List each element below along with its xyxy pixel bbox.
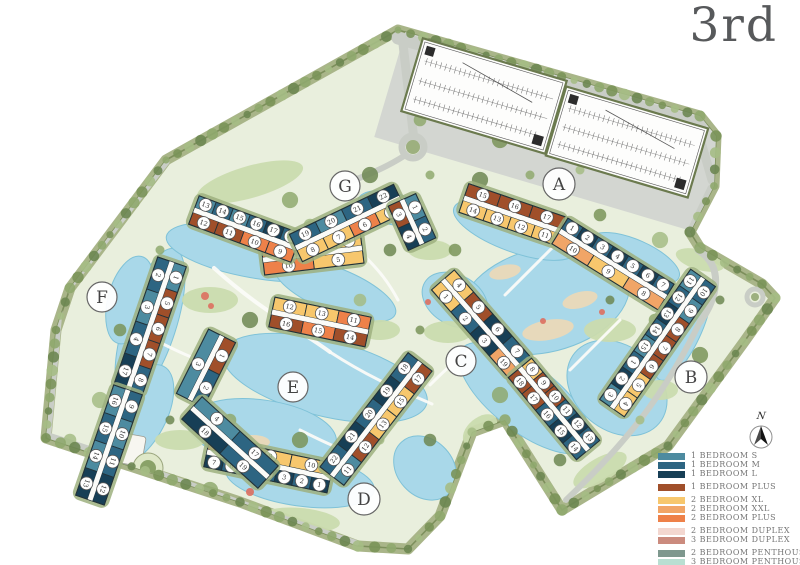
perimeter-tree-icon — [639, 455, 650, 466]
perimeter-tree-icon — [136, 186, 147, 197]
perimeter-tree-icon — [98, 241, 107, 250]
perimeter-tree-icon — [358, 44, 369, 55]
perimeter-tree-icon — [327, 531, 337, 541]
perimeter-tree-icon — [594, 82, 604, 92]
perimeter-tree-icon — [702, 197, 710, 205]
perimeter-tree-icon — [89, 251, 99, 261]
perimeter-tree-icon — [302, 522, 310, 530]
building-letter: A — [552, 175, 566, 195]
perimeter-tree-icon — [69, 442, 80, 453]
perimeter-tree-icon — [435, 511, 446, 522]
perimeter-tree-icon — [57, 312, 64, 319]
tree-icon — [156, 246, 165, 255]
perimeter-tree-icon — [254, 104, 263, 113]
perimeter-tree-icon — [106, 231, 113, 238]
tree-icon — [292, 432, 308, 448]
tree-icon — [652, 232, 668, 248]
perimeter-tree-icon — [722, 360, 731, 369]
perimeter-tree-icon — [300, 77, 311, 88]
legend-item: 1 BEDROOM L — [658, 470, 800, 478]
perimeter-tree-icon — [41, 433, 51, 443]
perimeter-tree-icon — [45, 407, 53, 415]
perimeter-tree-icon — [244, 111, 251, 118]
legend-item: 2 BEDROOM PLUS — [658, 514, 800, 522]
perimeter-tree-icon — [710, 165, 720, 175]
legend-group: 2 BEDROOM XL2 BEDROOM XXL2 BEDROOM PLUS — [658, 496, 800, 522]
tree-icon — [136, 476, 145, 485]
tree-icon — [424, 434, 437, 447]
perimeter-tree-icon — [415, 534, 422, 541]
perimeter-tree-icon — [581, 491, 590, 500]
perimeter-tree-icon — [369, 541, 380, 552]
perimeter-tree-icon — [145, 176, 155, 186]
perimeter-tree-icon — [154, 166, 163, 175]
unit-type-legend: 1 BEDROOM S1 BEDROOM M1 BEDROOM L1 BEDRO… — [658, 452, 800, 565]
perimeter-tree-icon — [340, 536, 351, 547]
tree-icon — [526, 171, 535, 180]
tree-icon — [282, 192, 298, 208]
perimeter-tree-icon — [222, 494, 230, 502]
perimeter-tree-icon — [61, 297, 70, 306]
legend-group: 1 BEDROOM PLUS — [658, 483, 800, 491]
perimeter-tree-icon — [153, 470, 164, 481]
building-letter: B — [685, 368, 698, 388]
legend-swatch — [658, 528, 685, 535]
unit-number: 12 — [285, 302, 295, 312]
building-letter: D — [357, 490, 371, 510]
legend-swatch — [658, 462, 685, 469]
perimeter-tree-icon — [770, 293, 781, 304]
compass: N — [744, 412, 778, 454]
tree-icon — [606, 296, 615, 305]
perimeter-tree-icon — [571, 77, 578, 84]
perimeter-tree-icon — [619, 89, 630, 100]
perimeter-tree-icon — [80, 261, 91, 272]
legend-label: 2 BEDROOM XXL — [691, 505, 770, 513]
perimeter-tree-icon — [209, 489, 217, 497]
perimeter-tree-icon — [140, 466, 150, 476]
perimeter-tree-icon — [173, 149, 182, 158]
perimeter-tree-icon — [762, 303, 773, 314]
perimeter-tree-icon — [740, 338, 748, 346]
unit-number: 11 — [349, 315, 359, 325]
perimeter-tree-icon — [695, 111, 706, 122]
tree-icon — [636, 416, 645, 425]
perimeter-tree-icon — [713, 371, 724, 382]
legend-label: 2 BEDROOM PLUS — [691, 514, 776, 522]
building-letter: C — [454, 352, 467, 372]
perimeter-tree-icon — [733, 266, 741, 274]
legend-item: 2 BEDROOM XXL — [658, 505, 800, 513]
perimeter-tree-icon — [659, 102, 667, 110]
perimeter-tree-icon — [274, 511, 285, 522]
perimeter-tree-icon — [128, 197, 139, 208]
perimeter-tree-icon — [65, 283, 76, 294]
legend-swatch — [658, 559, 685, 565]
perimeter-tree-icon — [445, 482, 456, 493]
legend-swatch — [658, 497, 685, 504]
perimeter-tree-icon — [47, 365, 58, 376]
perimeter-tree-icon — [207, 128, 218, 139]
perimeter-tree-icon — [467, 427, 476, 436]
perimeter-tree-icon — [705, 383, 716, 394]
perimeter-tree-icon — [288, 517, 298, 527]
perimeter-tree-icon — [184, 142, 194, 152]
perimeter-tree-icon — [195, 135, 206, 146]
legend-label: 3 BEDROOM DUPLEX — [691, 536, 790, 544]
perimeter-tree-icon — [569, 498, 580, 509]
legend-swatch — [658, 506, 685, 513]
perimeter-tree-icon — [747, 326, 757, 336]
tree-icon — [166, 416, 175, 425]
perimeter-tree-icon — [440, 496, 451, 507]
perimeter-tree-icon — [167, 474, 178, 485]
tree-icon — [692, 347, 708, 363]
legend-swatch — [658, 484, 685, 491]
legend-label: 1 BEDROOM S — [691, 452, 758, 460]
perimeter-tree-icon — [114, 220, 123, 229]
unit-number: 15 — [313, 326, 323, 336]
compass-north-label: N — [743, 412, 778, 422]
legend-swatch — [658, 453, 685, 460]
perimeter-tree-icon — [499, 414, 510, 425]
perimeter-tree-icon — [406, 29, 415, 38]
perimeter-tree-icon — [514, 437, 524, 447]
legend-label: 1 BEDROOM M — [691, 461, 760, 469]
compass-icon — [747, 422, 775, 450]
perimeter-tree-icon — [710, 147, 721, 158]
perimeter-tree-icon — [583, 80, 591, 88]
perimeter-tree-icon — [707, 250, 718, 261]
legend-item: 2 BEDROOM XL — [658, 496, 800, 504]
legend-swatch — [658, 550, 685, 557]
perimeter-tree-icon — [219, 122, 230, 133]
perimeter-tree-icon — [522, 449, 531, 458]
tree-icon — [426, 171, 435, 180]
building-letter: F — [96, 288, 108, 308]
legend-label: 2 BEDROOM PENTHOUSE — [691, 549, 800, 557]
perimeter-tree-icon — [606, 85, 617, 96]
legend-label: 1 BEDROOM L — [691, 470, 757, 478]
perimeter-tree-icon — [556, 504, 567, 515]
perimeter-tree-icon — [720, 258, 730, 268]
tree-icon — [449, 244, 462, 257]
perimeter-tree-icon — [72, 272, 83, 283]
perimeter-tree-icon — [605, 477, 614, 486]
perimeter-tree-icon — [530, 462, 537, 469]
perimeter-tree-icon — [45, 393, 54, 402]
perimeter-tree-icon — [288, 83, 299, 94]
perimeter-tree-icon — [746, 273, 754, 281]
perimeter-tree-icon — [180, 479, 191, 490]
perimeter-tree-icon — [265, 96, 275, 106]
perimeter-tree-icon — [50, 338, 60, 348]
perimeter-tree-icon — [632, 93, 643, 104]
perimeter-tree-icon — [688, 406, 698, 416]
building-letter: G — [338, 177, 352, 197]
perimeter-tree-icon — [162, 156, 169, 163]
perimeter-tree-icon — [325, 65, 333, 73]
perimeter-tree-icon — [681, 419, 690, 428]
legend-group: 2 BEDROOM PENTHOUSE3 BEDROOM PENTHOUSE — [658, 549, 800, 565]
perimeter-tree-icon — [671, 105, 679, 113]
perimeter-tree-icon — [543, 482, 553, 492]
perimeter-tree-icon — [55, 437, 66, 448]
legend-item: 3 BEDROOM DUPLEX — [658, 536, 800, 544]
legend-item: 2 BEDROOM DUPLEX — [658, 527, 800, 535]
perimeter-tree-icon — [549, 493, 560, 504]
perimeter-tree-icon — [616, 469, 626, 479]
legend-swatch — [658, 515, 685, 522]
perimeter-tree-icon — [463, 442, 470, 449]
perimeter-tree-icon — [347, 51, 357, 61]
tree-icon — [594, 209, 607, 222]
perimeter-tree-icon — [693, 212, 703, 222]
perimeter-tree-icon — [645, 97, 654, 106]
perimeter-tree-icon — [594, 485, 601, 492]
perimeter-tree-icon — [710, 182, 718, 190]
unit-number: 10 — [306, 460, 316, 470]
perimeter-tree-icon — [369, 37, 380, 48]
perimeter-tree-icon — [506, 426, 517, 437]
perimeter-tree-icon — [235, 497, 245, 507]
site-plan-page: 1516171413121112345671098A10987654111213… — [0, 0, 800, 565]
legend-item: 2 BEDROOM PENTHOUSE — [658, 549, 800, 557]
legend-label: 3 BEDROOM PENTHOUSE — [691, 558, 800, 565]
perimeter-tree-icon — [710, 130, 721, 141]
perimeter-tree-icon — [386, 543, 396, 553]
perimeter-tree-icon — [682, 107, 692, 117]
tree-icon — [716, 296, 725, 305]
perimeter-tree-icon — [663, 441, 672, 450]
perimeter-tree-icon — [673, 431, 680, 438]
perimeter-tree-icon — [248, 501, 259, 512]
perimeter-tree-icon — [694, 242, 705, 253]
perimeter-tree-icon — [52, 326, 61, 335]
perimeter-tree-icon — [194, 484, 204, 494]
perimeter-tree-icon — [336, 58, 344, 66]
legend-group: 2 BEDROOM DUPLEX3 BEDROOM DUPLEX — [658, 527, 800, 544]
tree-icon — [114, 324, 127, 337]
building-letter: E — [287, 378, 299, 398]
perimeter-tree-icon — [48, 351, 59, 362]
tree-icon — [554, 454, 567, 467]
perimeter-tree-icon — [381, 31, 392, 42]
legend-label: 2 BEDROOM XL — [691, 496, 764, 504]
tree-icon — [242, 312, 258, 328]
perimeter-tree-icon — [276, 89, 287, 100]
perimeter-tree-icon — [732, 350, 740, 358]
perimeter-tree-icon — [43, 420, 51, 428]
perimeter-tree-icon — [261, 506, 272, 517]
perimeter-tree-icon — [128, 462, 136, 470]
unit-number: 13 — [317, 309, 327, 319]
perimeter-tree-icon — [46, 379, 57, 390]
perimeter-tree-icon — [395, 27, 402, 34]
perimeter-tree-icon — [231, 116, 240, 125]
perimeter-tree-icon — [121, 208, 131, 218]
tree-icon — [492, 387, 508, 403]
legend-label: 1 BEDROOM PLUS — [691, 483, 776, 491]
legend-group: 1 BEDROOM S1 BEDROOM M1 BEDROOM L — [658, 452, 800, 478]
legend-swatch — [658, 471, 685, 478]
perimeter-tree-icon — [627, 462, 638, 473]
legend-item: 3 BEDROOM PENTHOUSE — [658, 558, 800, 565]
perimeter-tree-icon — [754, 315, 765, 326]
perimeter-tree-icon — [404, 545, 412, 553]
perimeter-tree-icon — [312, 71, 321, 80]
perimeter-tree-icon — [352, 540, 363, 551]
perimeter-tree-icon — [696, 394, 707, 405]
perimeter-tree-icon — [483, 421, 494, 432]
legend-item: 1 BEDROOM S — [658, 452, 800, 460]
unit-number: 14 — [345, 333, 355, 343]
perimeter-tree-icon — [685, 227, 696, 238]
tree-icon — [362, 167, 378, 183]
perimeter-tree-icon — [425, 522, 434, 531]
perimeter-tree-icon — [451, 469, 461, 479]
perimeter-tree-icon — [757, 279, 767, 289]
tree-icon — [354, 294, 367, 307]
perimeter-tree-icon — [315, 527, 323, 535]
legend-item: 1 BEDROOM PLUS — [658, 483, 800, 491]
perimeter-tree-icon — [457, 456, 466, 465]
perimeter-tree-icon — [536, 472, 545, 481]
tree-icon — [416, 326, 425, 335]
legend-item: 1 BEDROOM M — [658, 461, 800, 469]
legend-label: 2 BEDROOM DUPLEX — [691, 527, 790, 535]
tree-icon — [384, 244, 397, 257]
legend-swatch — [658, 537, 685, 544]
unit-number: 16 — [281, 319, 291, 329]
floor-title: 3rd — [690, 0, 778, 53]
